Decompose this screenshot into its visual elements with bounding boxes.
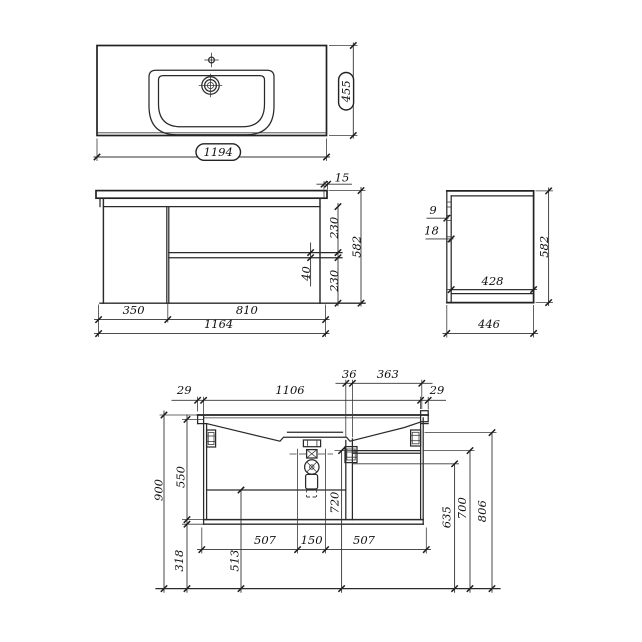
dim-carcass-height-label: 550	[174, 466, 188, 488]
dim-top-depth: 455	[329, 42, 358, 138]
dim-side-9-label: 9	[429, 203, 436, 217]
dim-left-drawer-label: 507	[254, 533, 277, 547]
dim-section-bottom: 507 150 507	[197, 533, 431, 553]
dim-section-width: 29 1106 29	[172, 383, 447, 403]
dim-side-18-label: 18	[424, 224, 439, 238]
dim-side-inner-depth: 428	[448, 274, 538, 293]
faucet-hole	[204, 53, 218, 67]
dim-side-depth: 446	[443, 305, 539, 338]
dim-upper-drawer-label: 230	[327, 217, 341, 240]
dim-side-inner-depth-label: 428	[481, 274, 504, 288]
dim-inner-width-label: 1106	[275, 383, 304, 397]
right-slide-bracket	[411, 430, 421, 446]
dim-front-widths: 350 810 1164	[94, 303, 330, 337]
dim-top-width: 1194	[94, 139, 331, 162]
dim-level-806-label: 806	[475, 500, 489, 522]
dim-partition-label: 36	[342, 367, 357, 381]
dim-lower-drawer-label: 230	[327, 270, 341, 293]
dim-gap-label: 40	[299, 266, 313, 282]
dim-front-gap: 40	[299, 243, 314, 287]
dim-section-top: 36 363	[336, 367, 433, 387]
dim-right-span-label: 363	[377, 367, 399, 381]
drawing-svg: 455 1194 15	[0, 0, 642, 642]
drain-hole	[199, 74, 222, 97]
partition-slide-bracket	[345, 447, 357, 463]
dim-overall-height-label: 900	[152, 479, 166, 501]
dim-top-width-label: 1194	[204, 145, 233, 159]
top-view: 455 1194	[94, 42, 358, 161]
countertop-slab	[96, 191, 327, 199]
left-slide-bracket	[207, 430, 216, 447]
basin-inner	[159, 76, 265, 127]
dim-side-height: 582	[536, 188, 554, 307]
dim-left-width-label: 350	[123, 303, 145, 317]
dim-overall-width-label: 1164	[204, 317, 233, 331]
dim-level-700-label: 700	[455, 497, 469, 519]
dim-side-height-label: 582	[537, 236, 551, 258]
dim-front-overhang-label: 15	[335, 171, 350, 185]
dim-front-height-label: 582	[349, 236, 363, 258]
dim-left-overhang-label: 29	[176, 383, 192, 397]
dim-drain-spacing-label: 150	[301, 533, 323, 547]
dim-right-width-label: 810	[236, 303, 258, 317]
drain-trap	[303, 440, 320, 497]
dim-section-left: 900 550 318 513 720	[152, 411, 345, 593]
dim-top-depth-label: 455	[339, 80, 353, 103]
dim-wall-clearance-label: 318	[172, 550, 186, 572]
dim-right-drawer-label: 507	[353, 533, 376, 547]
side-view: 9 18 428 582 446	[424, 188, 553, 338]
section-view: 36 363 29 1106 29 900 550 318 513	[152, 367, 500, 593]
dim-section-right: 635 700 806	[440, 429, 496, 592]
dim-level-635-label: 635	[440, 506, 454, 528]
dim-side-depth-label: 446	[477, 317, 500, 331]
dim-front-drawers: 230 230	[327, 203, 341, 306]
dim-side-18: 18	[424, 224, 454, 243]
dim-right-overhang-label: 29	[429, 383, 445, 397]
technical-drawing: 455 1194 15	[0, 0, 642, 642]
dim-trap-height-label: 720	[328, 492, 342, 514]
dim-front-overhang: 15	[317, 171, 353, 190]
basin-profile	[207, 422, 421, 441]
dim-front-height-label: 513	[228, 550, 242, 572]
right-rim-cap	[421, 411, 429, 422]
front-view: 15 230 230 40 582 350	[94, 171, 366, 338]
